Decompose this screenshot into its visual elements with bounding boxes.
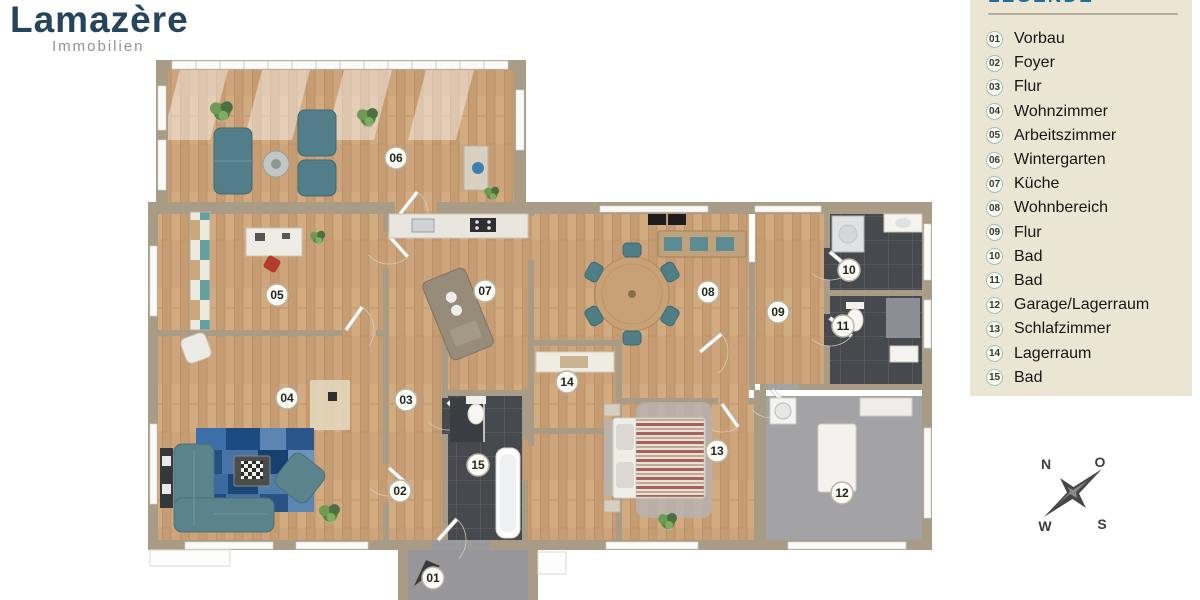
room-13-furniture: [604, 402, 712, 530]
legend-title-clipped: LEGENDE: [986, 0, 1180, 5]
legend-item: 03Flur: [986, 75, 1180, 99]
room-badge: 04: [276, 387, 298, 409]
room-14-furniture: [536, 352, 614, 372]
porch-step: [538, 552, 566, 574]
nightstand: [604, 404, 620, 416]
legend-item-label: Schlafzimmer: [1014, 320, 1111, 338]
svg-text:11: 11: [837, 319, 850, 333]
legend-divider: [988, 13, 1178, 15]
room-03-02-flur-foyer-floor: [389, 330, 442, 544]
legend-item-number: 05: [986, 127, 1003, 144]
wardrobe: [190, 212, 210, 330]
room-badge: 05: [266, 284, 288, 306]
terrace-step: [150, 550, 230, 566]
legend-item-label: Wintergarten: [1014, 151, 1106, 169]
beige-rug: [310, 380, 350, 430]
legend-item: 08Wohnbereich: [986, 196, 1180, 220]
legend-item-label: Garage/Lagerraum: [1014, 296, 1149, 314]
svg-text:13: 13: [710, 444, 724, 458]
legend-item-number: 12: [986, 297, 1003, 314]
legend-item: 15Bad: [986, 366, 1180, 390]
svg-text:03: 03: [399, 393, 413, 407]
armchair: [298, 110, 336, 156]
compass-o-label: O: [1095, 454, 1106, 470]
legend-item: 05Arbeitszimmer: [986, 124, 1180, 148]
room-badge: 06: [385, 147, 407, 169]
svg-text:08: 08: [701, 285, 715, 299]
legend-item-label: Lagerraum: [1014, 345, 1091, 363]
legend-item-label: Arbeitszimmer: [1014, 127, 1116, 145]
kitchen-counter: [389, 214, 528, 238]
legend-item: 14Lagerraum: [986, 341, 1180, 365]
legend-item-label: Küche: [1014, 175, 1059, 193]
room-badge: 13: [706, 440, 728, 462]
legend-item-number: 11: [986, 272, 1003, 289]
legend-item: 02Foyer: [986, 51, 1180, 75]
legend-item-label: Bad: [1014, 272, 1042, 290]
legend-item-label: Flur: [1014, 224, 1042, 242]
svg-text:09: 09: [771, 305, 785, 319]
compass-n-label: N: [1041, 456, 1051, 472]
legend-item-label: Vorbau: [1014, 30, 1065, 48]
vanity: [890, 346, 918, 362]
chessboard: [241, 461, 263, 479]
legend-panel: LEGENDE 01Vorbau02Foyer03Flur04Wohnzimme…: [970, 0, 1192, 396]
compass-s-label: S: [1097, 516, 1106, 532]
legend-item-number: 08: [986, 200, 1003, 217]
svg-text:15: 15: [471, 458, 485, 472]
svg-text:01: 01: [426, 571, 440, 585]
svg-text:10: 10: [842, 263, 856, 277]
compass-w-label: W: [1038, 518, 1052, 534]
legend-item-number: 13: [986, 321, 1003, 338]
room-09-flur-floor: [755, 214, 824, 384]
legend-item: 10Bad: [986, 245, 1180, 269]
legend-item-number: 01: [986, 31, 1003, 48]
legend-item: 13Schlafzimmer: [986, 317, 1180, 341]
pillow: [616, 424, 634, 450]
svg-text:07: 07: [478, 284, 492, 298]
toilet-tank: [466, 396, 486, 404]
legend-item-label: Wohnbereich: [1014, 199, 1108, 217]
room-badge: 03: [395, 389, 417, 411]
legend-item-number: 10: [986, 248, 1003, 265]
desk-chair: [472, 162, 484, 174]
cooktop: [668, 214, 686, 225]
duvet: [636, 419, 704, 497]
toilet-tank: [846, 302, 864, 309]
legend-item: 09Flur: [986, 221, 1180, 245]
room-badge: 10: [838, 259, 860, 281]
svg-text:12: 12: [835, 486, 849, 500]
legend-item-number: 03: [986, 79, 1003, 96]
svg-text:14: 14: [560, 375, 574, 389]
svg-text:05: 05: [270, 288, 284, 302]
legend-item: 06Wintergarten: [986, 148, 1180, 172]
desk: [246, 228, 302, 256]
brand-logo: Lamazère Immobilien: [10, 0, 189, 55]
entrance-hall-floor: [528, 434, 616, 540]
legend-item-label: Wohnzimmer: [1014, 103, 1108, 121]
legend-item: 07Küche: [986, 172, 1180, 196]
legend-item: 01Vorbau: [986, 27, 1180, 51]
cabinet: [860, 398, 912, 416]
brand-name: Lamazère: [10, 0, 189, 41]
room-badge: 11: [832, 315, 854, 337]
legend-item-label: Foyer: [1014, 54, 1055, 72]
nightstand: [604, 500, 620, 512]
legend-item-number: 06: [986, 152, 1003, 169]
legend-item-label: Bad: [1014, 248, 1042, 266]
room-badge: 08: [697, 281, 719, 303]
corner-sofa: [174, 498, 274, 532]
legend-item-number: 04: [986, 103, 1003, 120]
shower: [886, 298, 920, 338]
pillow: [616, 462, 634, 488]
legend-item: 11Bad: [986, 269, 1180, 293]
legend-items: 01Vorbau02Foyer03Flur04Wohnzimmer05Arbei…: [986, 27, 1180, 390]
legend-item: 04Wohnzimmer: [986, 100, 1180, 124]
room-badge: 07: [474, 280, 496, 302]
armchair: [298, 160, 336, 196]
legend-item: 12Garage/Lagerraum: [986, 293, 1180, 317]
room-badge: 12: [831, 482, 853, 504]
legend-item-label: Bad: [1014, 369, 1042, 387]
legend-item-label: Flur: [1014, 78, 1042, 96]
legend-item-number: 14: [986, 345, 1003, 362]
legend-item-number: 09: [986, 224, 1003, 241]
workbench: [818, 424, 856, 492]
room-badge: 09: [767, 301, 789, 323]
room-badge: 02: [389, 480, 411, 502]
legend-item-number: 07: [986, 176, 1003, 193]
cooktop: [648, 214, 666, 225]
room-badge: 01: [422, 567, 444, 589]
kitchen-sink: [412, 219, 434, 232]
room-badge: 15: [467, 454, 489, 476]
bed-headboard: [604, 420, 613, 496]
legend-item-number: 15: [986, 369, 1003, 386]
room-badge: 14: [556, 371, 578, 393]
legend-title: LEGENDE: [988, 0, 1094, 5]
compass-rose: N O W S: [1038, 454, 1106, 534]
svg-text:06: 06: [389, 151, 403, 165]
legend-item-number: 02: [986, 55, 1003, 72]
toilet: [468, 404, 484, 424]
svg-text:04: 04: [280, 391, 294, 405]
svg-text:02: 02: [393, 484, 407, 498]
stove: [470, 218, 496, 232]
